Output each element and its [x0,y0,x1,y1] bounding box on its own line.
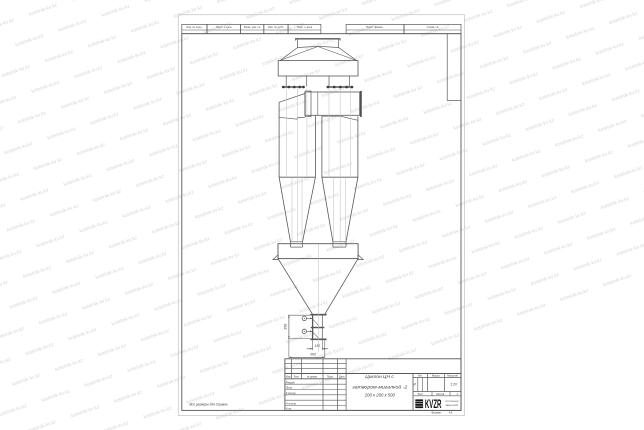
svg-text:350: 350 [284,324,288,330]
svg-text:Листов: Листов [436,393,445,396]
svg-text:Дата: Дата [339,375,345,378]
svg-text:150: 150 [315,344,321,348]
svg-text:Инв. № дубл.: Инв. № дубл. [268,25,284,29]
svg-text:Все размеры для справок: Все размеры для справок [190,403,228,407]
svg-text:Масса: Масса [432,375,440,378]
svg-text:1:20: 1:20 [450,382,457,386]
svg-text:Масштаб: Масштаб [447,375,458,378]
svg-text:ЗАВОД КВЗР: ЗАВОД КВЗР [445,404,458,407]
svg-text:Подп.: Подп. [327,375,334,378]
svg-text:И: И [413,383,416,387]
svg-text:Справ. №: Справ. № [427,25,439,29]
svg-text:1: 1 [456,392,458,396]
svg-text:Разраб.: Разраб. [286,380,296,384]
svg-text:Н.контр.: Н.контр. [286,402,297,406]
svg-text:Формат: Формат [431,411,442,415]
svg-text:Взам. инв. №: Взам. инв. № [244,25,260,29]
svg-text:Изм: Изм [286,375,291,378]
svg-text:КОТЕЛЬНЫЙ: КОТЕЛЬНЫЙ [445,400,459,403]
svg-text:Инв. № подл.: Инв. № подл. [186,25,202,29]
svg-text:KVZR: KVZR [425,398,442,411]
svg-text:Т.контр.: Т.контр. [286,391,297,395]
svg-text:Подп. и дата: Подп. и дата [216,25,232,29]
svg-text:Лит.: Лит. [418,375,423,378]
svg-text:Лист: Лист [418,393,424,396]
svg-text:Перв. примен.: Перв. примен. [366,25,384,29]
svg-text:600: 600 [310,353,316,357]
svg-text:Циклон ЦН с: Циклон ЦН с [365,374,394,379]
svg-text:Лист: Лист [294,375,300,378]
svg-text:Пров.: Пров. [286,386,293,390]
svg-text:200 х 200 х 500: 200 х 200 х 500 [364,392,395,397]
svg-text:№ докум.: № докум. [307,375,318,378]
svg-text:затвором-мигалкой -2: затвором-мигалкой -2 [351,384,408,390]
svg-text:Подп. и дата: Подп. и дата [297,25,313,29]
svg-text:А3: А3 [449,411,453,415]
svg-text:Утв.: Утв. [286,407,292,411]
